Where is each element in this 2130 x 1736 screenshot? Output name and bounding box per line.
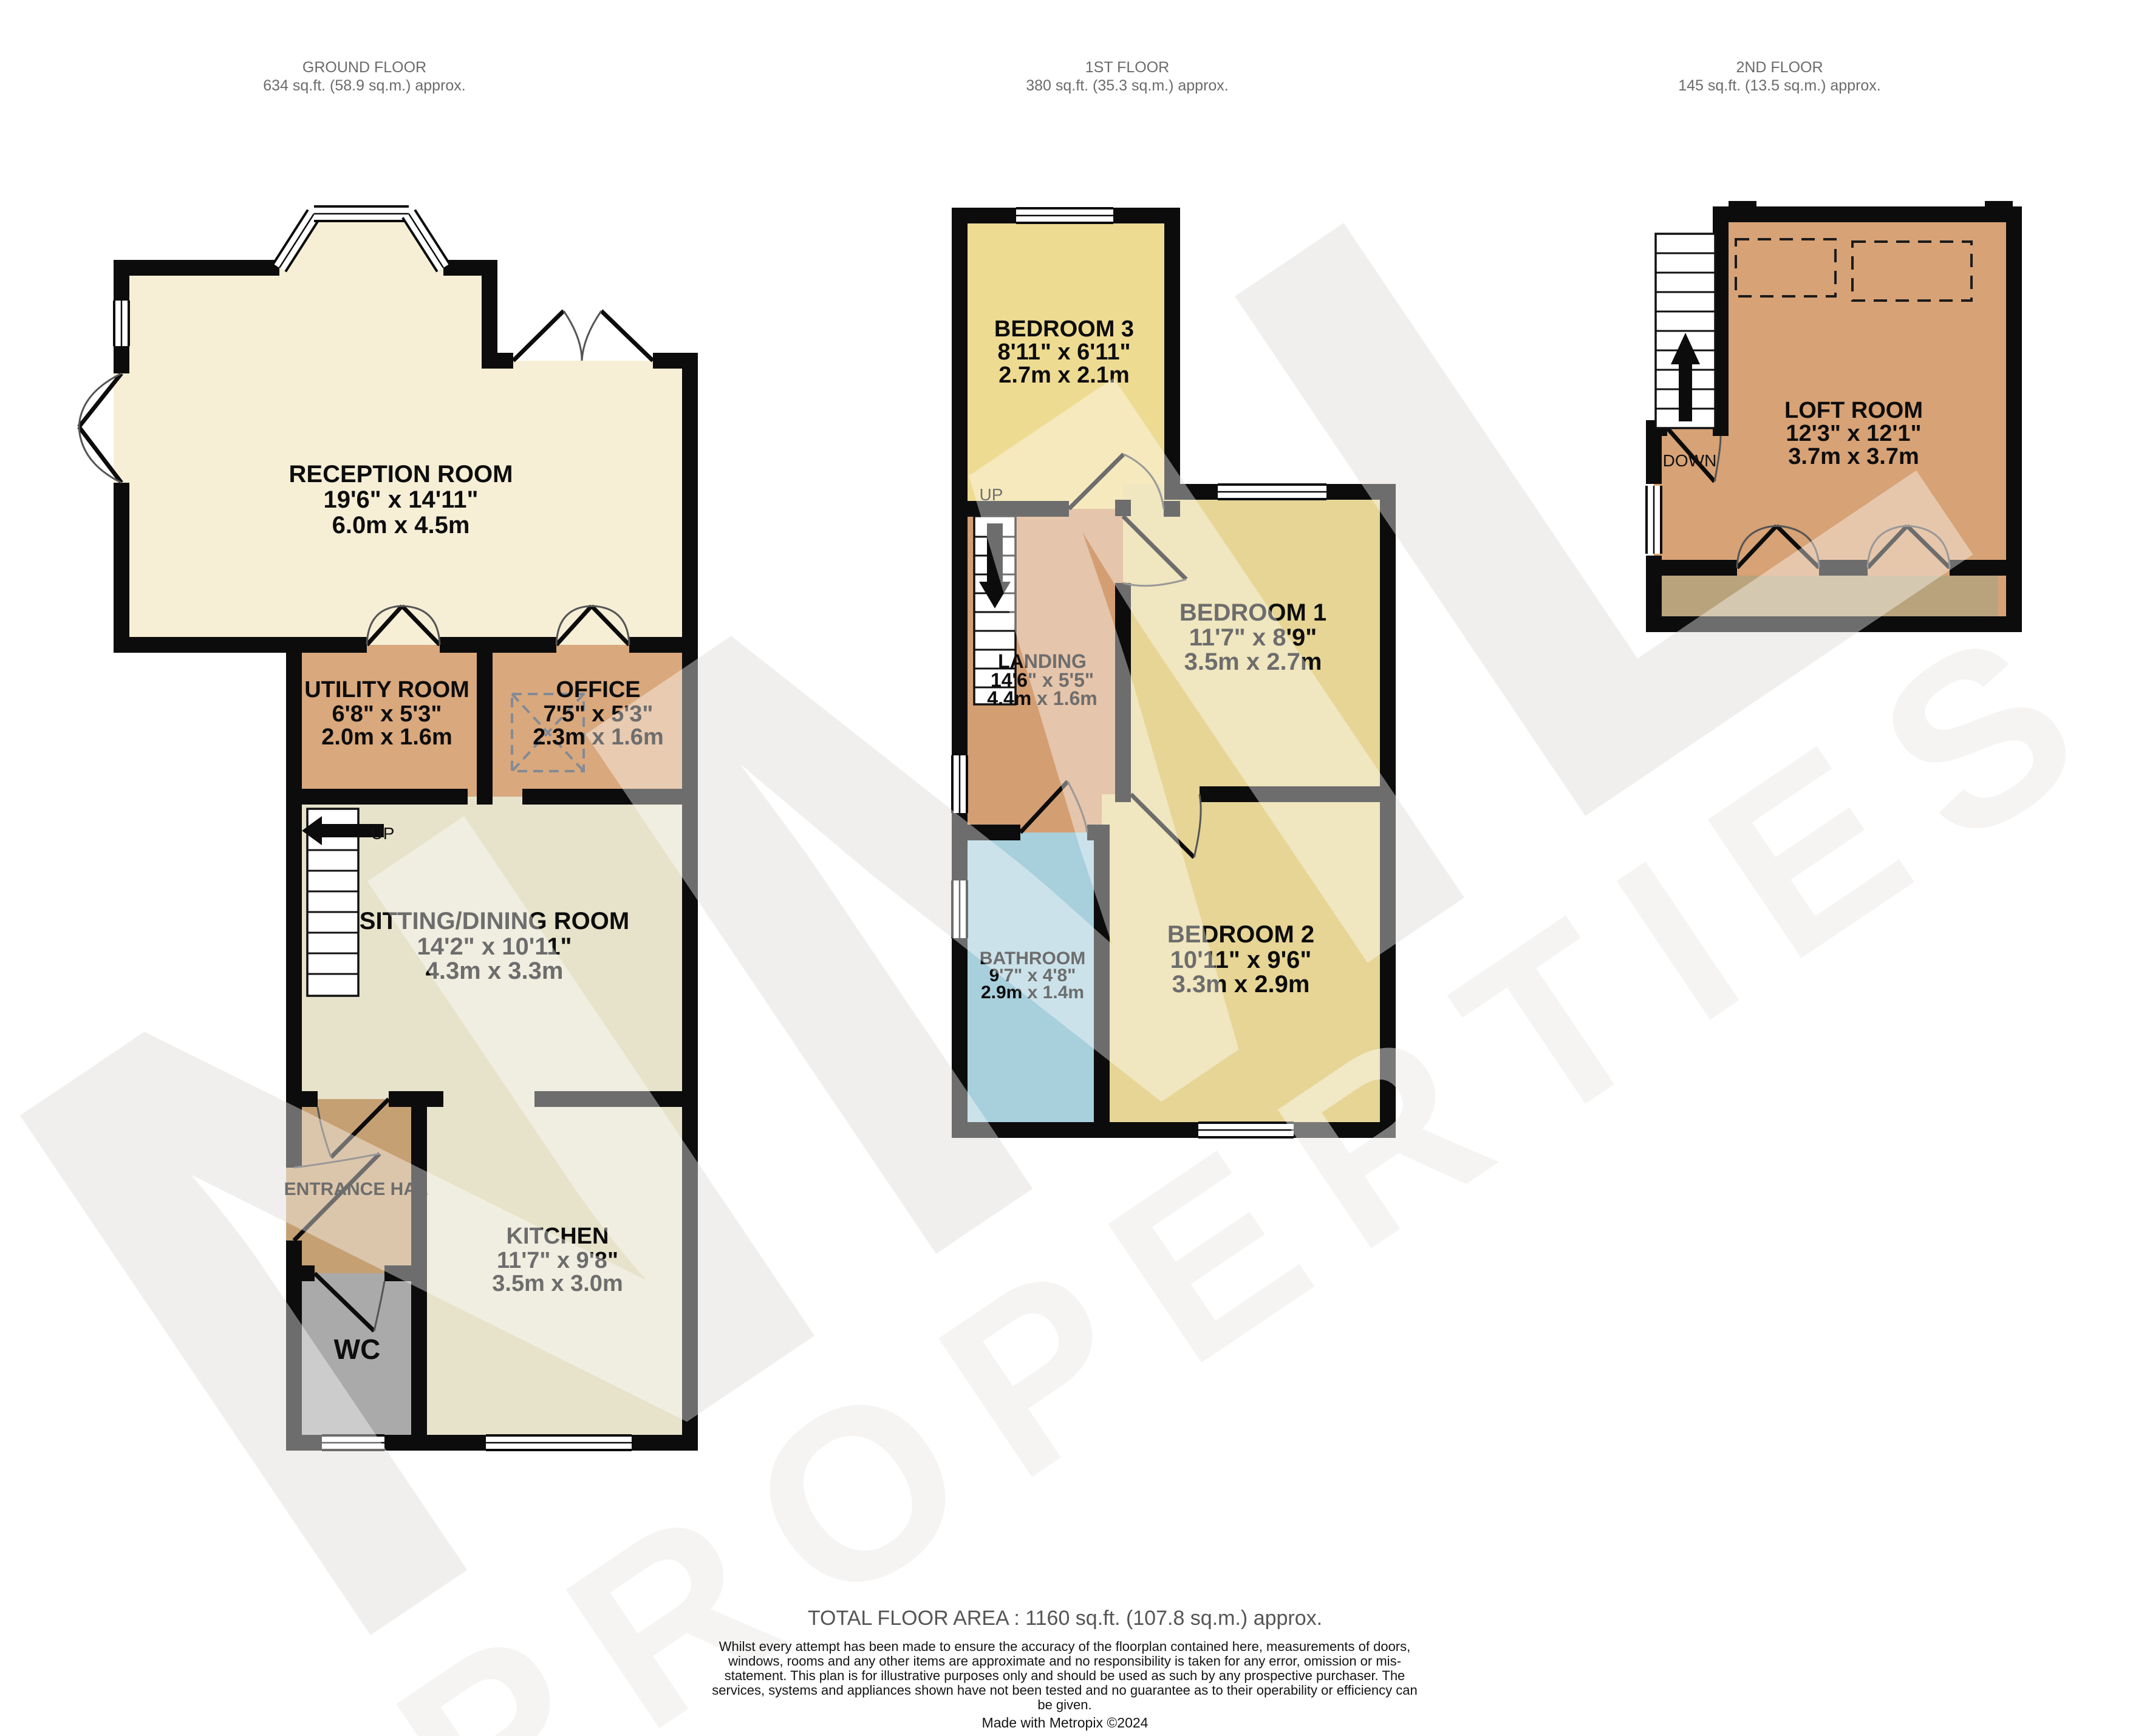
landing-metric: 4.4m x 1.6m [987,687,1097,709]
floorplan-drawing: RECEPTION ROOM 19'6" x 14'11" 6.0m x 4.5… [0,0,2130,1736]
first-floor-header: 1ST FLOOR 380 sq.ft. (35.3 sq.m.) approx… [1026,58,1229,95]
sitting-imperial: 14'2" x 10'11" [417,933,572,960]
wall-stub [1729,201,1756,214]
bedroom3-name: BEDROOM 3 [994,316,1134,342]
bedroom1-name: BEDROOM 1 [1179,599,1326,626]
wc-name: WC [334,1333,381,1365]
reception-name: RECEPTION ROOM [289,461,513,488]
kitchen-metric: 3.5m x 3.0m [492,1271,623,1296]
first-floor-title: 1ST FLOOR [1026,58,1229,77]
first-floor-area: 380 sq.ft. (35.3 sq.m.) approx. [1026,77,1229,95]
office-metric: 2.3m x 1.6m [533,724,663,750]
kitchen-imperial: 11'7" x 9'8" [497,1248,618,1273]
loft-metric: 3.7m x 3.7m [1788,444,1919,469]
bedroom3-metric: 2.7m x 2.1m [998,363,1129,388]
bedroom2-imperial: 10'11" x 9'6" [1170,947,1312,973]
reception-metric: 6.0m x 4.5m [332,512,470,539]
utility-name: UTILITY ROOM [304,677,469,703]
second-floor-area: 145 sq.ft. (13.5 sq.m.) approx. [1678,77,1881,95]
reception-french-doors-north [513,311,653,361]
loft-eaves-band [1662,576,1998,616]
wall-stub [1985,201,2013,214]
ground-up-label: UP [371,824,395,843]
ground-floor-area: 634 sq.ft. (58.9 sq.m.) approx. [263,77,466,95]
loft-imperial: 12'3" x 12'1" [1786,421,1921,446]
first-up-label: UP [980,485,1003,504]
sitting-name: SITTING/DINING ROOM [360,908,629,934]
floorplan-page: NML PROPERTIES [0,0,2130,1736]
disclaimer-text: Whilst every attempt has been made to en… [709,1639,1420,1712]
first-floor-plan: BEDROOM 3 8'11" x 6'11" 2.7m x 2.1m UP L… [952,208,1396,1138]
metropix-credit: Made with Metropix ©2024 [0,1715,2130,1731]
entrance-hall-name: ENTRANCE HAL [284,1179,428,1199]
sitting-metric: 4.3m x 3.3m [426,958,564,984]
second-floor-header: 2ND FLOOR 145 sq.ft. (13.5 sq.m.) approx… [1678,58,1881,95]
ground-floor-plan: RECEPTION ROOM 19'6" x 14'11" 6.0m x 4.5… [79,214,698,1451]
kitchen-name: KITCHEN [507,1224,609,1249]
reception-imperial: 19'6" x 14'11" [324,486,479,513]
bedroom2-metric: 3.3m x 2.9m [1172,971,1310,998]
second-floor-stairs [1656,234,1715,428]
office-name: OFFICE [556,677,640,703]
utility-metric: 2.0m x 1.6m [321,724,452,750]
ground-floor-header: GROUND FLOOR 634 sq.ft. (58.9 sq.m.) app… [263,58,466,95]
second-floor-title: 2ND FLOOR [1678,58,1881,77]
second-down-label: DOWN [1663,451,1717,470]
ground-floor-title: GROUND FLOOR [263,58,466,77]
bathroom-metric: 2.9m x 1.4m [981,982,1084,1002]
second-floor-plan: DOWN LOFT ROOM 12'3" x 12'1" 3.7m x 3.7m [1646,201,2022,632]
office-imperial: 7'5" x 5'3" [544,701,654,727]
bedroom3-imperial: 8'11" x 6'11" [998,339,1131,365]
utility-imperial: 6'8" x 5'3" [332,701,442,727]
bedroom1-imperial: 11'7" x 8'9" [1189,624,1317,651]
bedroom1-metric: 3.5m x 2.7m [1184,648,1322,675]
total-floor-area: TOTAL FLOOR AREA : 1160 sq.ft. (107.8 sq… [0,1607,2130,1630]
loft-name: LOFT ROOM [1784,398,1923,423]
bedroom2-name: BEDROOM 2 [1167,921,1314,948]
reception-room-area [114,214,698,645]
